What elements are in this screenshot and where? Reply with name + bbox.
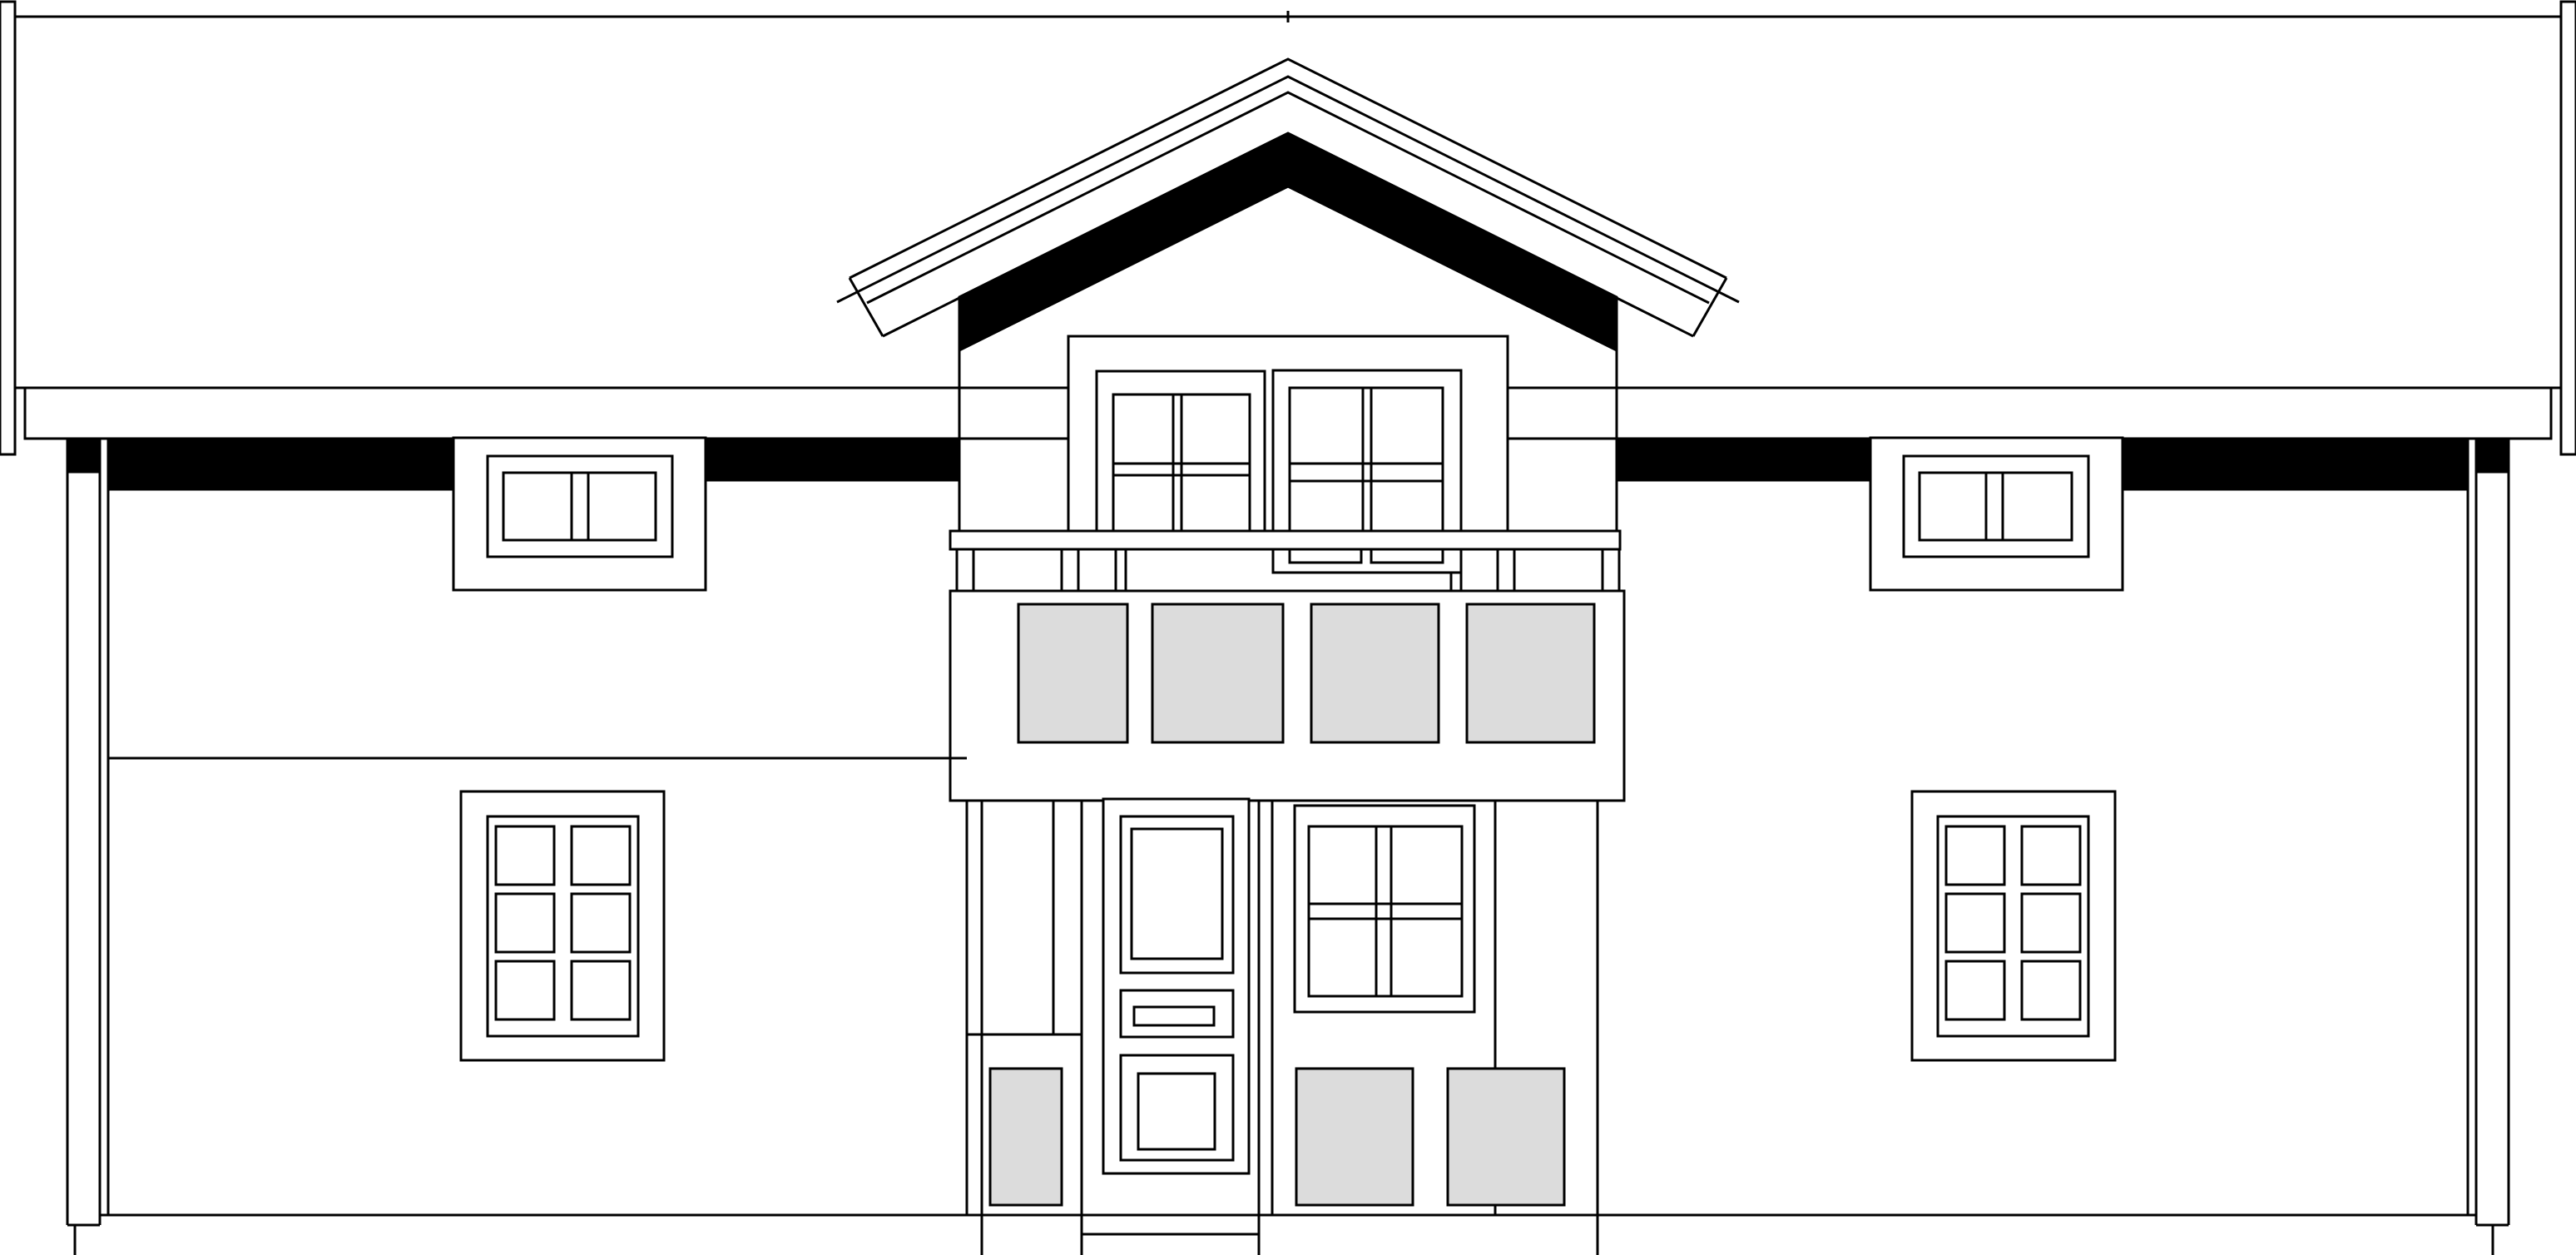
bay-glass-panel-1 <box>1018 604 1127 742</box>
porch-window-trim <box>1295 806 1474 1012</box>
right-post-black-cap <box>2476 439 2509 472</box>
left-edge-strip <box>0 2 15 454</box>
door-trim <box>1103 799 1249 1173</box>
right-edge-strip <box>2561 2 2576 454</box>
right-window-trim <box>1912 791 2115 1060</box>
porch-gray-panel-left <box>990 1069 1062 1205</box>
left-clerestory-window-surround <box>453 438 706 590</box>
porch-gray-panel-right-a <box>1296 1069 1413 1205</box>
balcony-rail <box>950 531 1620 549</box>
eave-shadow-band-left-outer <box>109 439 453 489</box>
bay-glass-panel-3 <box>1311 604 1439 742</box>
left-window-trim <box>461 791 664 1060</box>
eave-shadow-band-right-inner <box>1617 439 1870 480</box>
eave-shadow-band-left-inner <box>706 439 959 480</box>
elevation-drawing-canvas <box>0 0 2576 1255</box>
porch-gray-panel-right-b <box>1448 1069 1564 1205</box>
house-front-elevation <box>0 0 2576 1255</box>
upper-right-window-below-rail <box>1273 549 1461 573</box>
right-clerestory-window-surround <box>1870 438 2123 590</box>
eave-shadow-band-right-outer <box>2123 439 2467 489</box>
main-roof-band <box>15 17 2561 388</box>
left-post-black-cap <box>67 439 100 472</box>
bay-glass-panel-4 <box>1467 604 1594 742</box>
bay-glass-panel-2 <box>1152 604 1283 742</box>
